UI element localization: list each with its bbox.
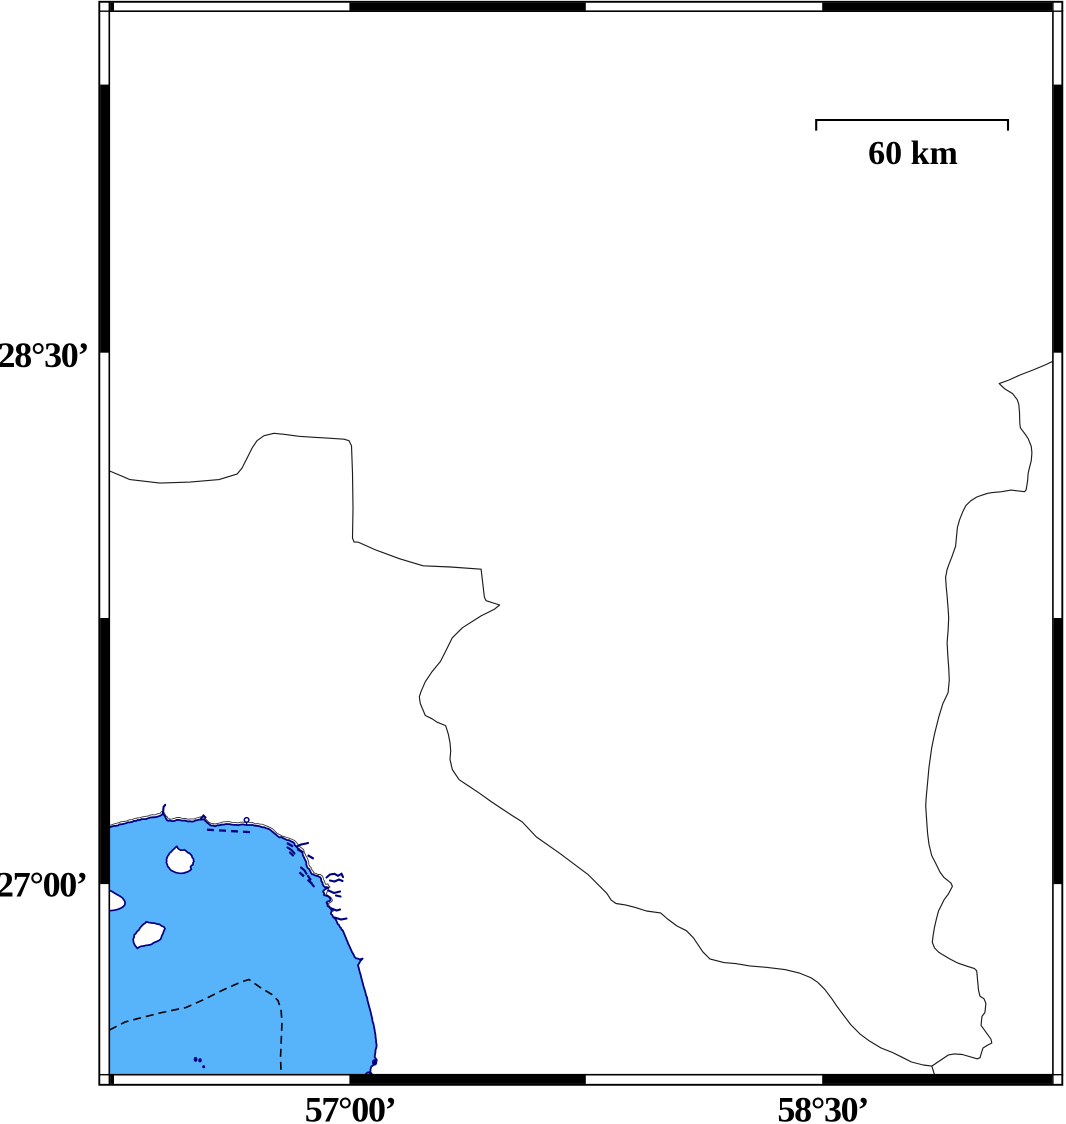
svg-text:57°00’: 57°00’	[305, 1089, 397, 1124]
svg-text:60 km: 60 km	[868, 135, 958, 172]
svg-text:28°30’: 28°30’	[0, 335, 90, 375]
svg-text:58°30’: 58°30’	[777, 1089, 869, 1124]
svg-text:27°00’: 27°00’	[0, 865, 88, 905]
